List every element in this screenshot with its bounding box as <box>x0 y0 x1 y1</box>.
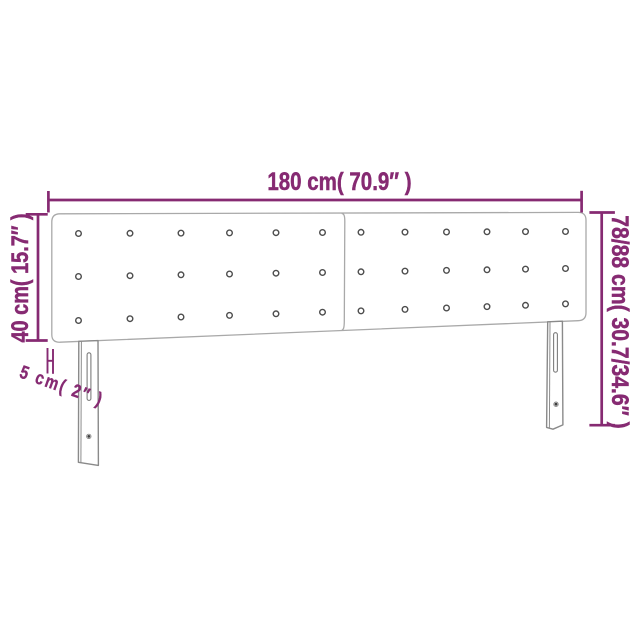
svg-text:78/88 cm( 30.7/34.6″ ): 78/88 cm( 30.7/34.6″ ) <box>607 215 635 428</box>
svg-text:40 cm( 15.7″ ): 40 cm( 15.7″ ) <box>6 213 33 342</box>
svg-text:180 cm( 70.9″ ): 180 cm( 70.9″ ) <box>267 167 411 195</box>
